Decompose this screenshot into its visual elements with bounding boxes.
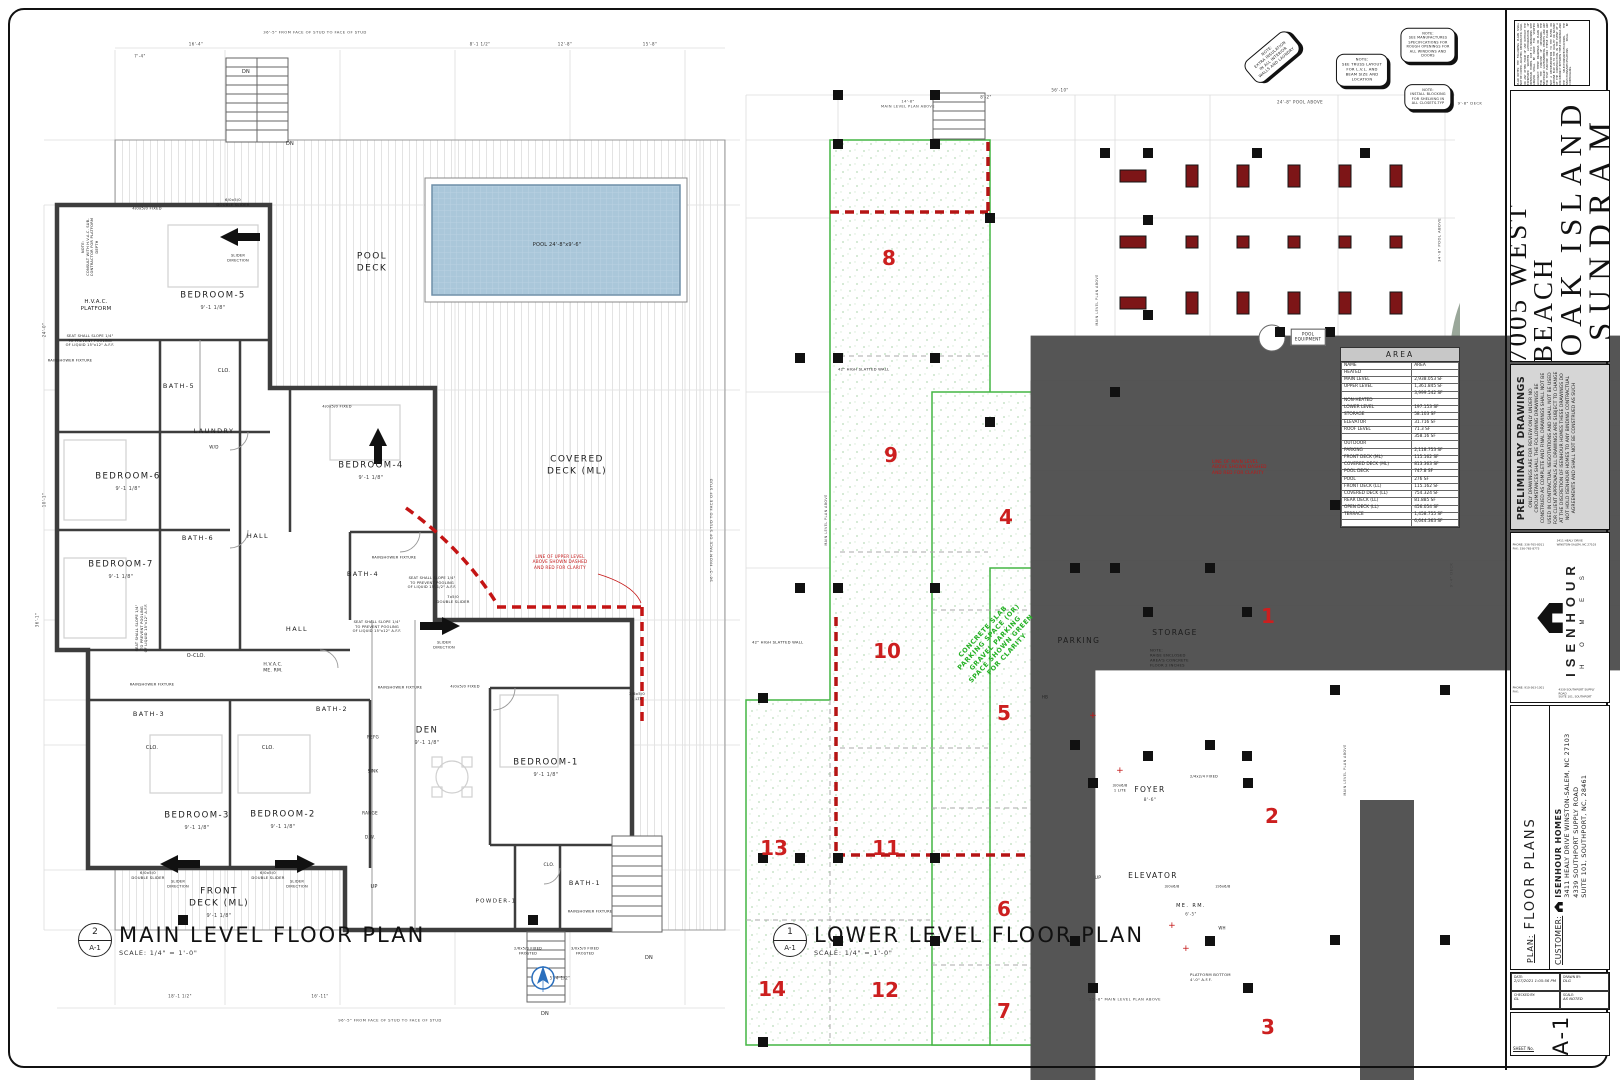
stall-number: 8: [882, 246, 896, 272]
stall-number: 5: [997, 701, 1011, 727]
main-plan-ref-bubble: 2 A-1: [78, 923, 112, 957]
area-name: ROOF LEVEL: [1342, 427, 1412, 434]
room-label-bath4: BATH-4: [347, 570, 379, 578]
preliminary-title: PRELIMINARY DRAWINGS: [1516, 376, 1527, 520]
detail-sheet: A-1: [774, 940, 806, 957]
room-label-me-rm: ME. RM.: [1176, 903, 1206, 909]
plan-label: RAINSHOWER FIXTURE: [130, 683, 175, 688]
plan-label: UP: [1095, 876, 1101, 882]
plan-label: SEAT SHALL SLOPE 1/4" TO PREVENT POOLING…: [353, 620, 402, 634]
lower-plan-title: LOWER LEVEL FLOOR PLAN: [814, 923, 1144, 947]
date-value: 2/17/2021 1:05:56 PM: [1514, 979, 1557, 984]
house-icon: [1554, 902, 1563, 912]
plan-label: SLIDER DIRECTION: [286, 879, 308, 888]
area-value: 747.8 SF: [1412, 469, 1459, 476]
area-table-row: COVERED DECK (LL)754.324 SF: [1342, 491, 1459, 498]
area-name: [1342, 434, 1412, 441]
plan-label: RANGE: [362, 810, 378, 815]
room-label-bath2: BATH-2: [316, 705, 348, 713]
lower-plan-titlebar: 1 A-1 LOWER LEVEL FLOOR PLAN SCALE: 1/4"…: [773, 923, 1144, 957]
area-value: 754.324 SF: [1412, 491, 1459, 498]
area-name: POOL: [1342, 477, 1412, 484]
room-label-covered-deck: COVERED DECK (ML): [547, 454, 607, 477]
stall-number: 9: [884, 443, 898, 469]
plan-label: NOTE: CONSULT WITH H.V.A.C. SUB- CONTRAC…: [81, 218, 99, 276]
area-table-row: HEATED: [1342, 370, 1459, 377]
area-table-row: POOL DECK747.8 SF: [1342, 469, 1459, 476]
plan-label: 8'-1 1/2": [470, 41, 491, 46]
room-label-storage: STORAGE: [1152, 628, 1198, 638]
plan-label: 5'-4 1/2": [550, 975, 571, 980]
plan-notes-text: PLAN NOTES: THE FOLLOWING PLANS SHALL NO…: [1515, 21, 1590, 86]
area-value: 276 SF: [1412, 477, 1459, 484]
plan-label: 15'-8": [643, 41, 657, 46]
plan-label: 96'-5" FROM FACE OF STUD TO FACE OF STUD: [338, 1019, 442, 1024]
plan-label: 2/6x5/0 FIXED FROSTED: [514, 946, 542, 955]
plan-label: 2/6x6/8: [1215, 885, 1230, 890]
water-heater-label: WH: [1218, 925, 1225, 930]
plan-label: 3/0x5/0 FIXED FROSTED: [571, 946, 599, 955]
area-name: REAR DECK (LL): [1342, 498, 1412, 505]
plan-label: 7x5/0 DOUBLE SLIDER: [436, 595, 469, 605]
room-label-bedroom4: BEDROOM-4: [338, 461, 403, 472]
area-col-name: NAME: [1342, 363, 1412, 370]
room-label-bath5: BATH-5: [163, 382, 195, 390]
room-label-powder1: POWDER-1: [475, 898, 516, 905]
plan-label: DN: [541, 1011, 549, 1017]
plan-label: 16'-11": [311, 993, 328, 998]
area-table-row: REAR DECK (LL)81.885 SF: [1342, 498, 1459, 505]
plan-label: W/D: [209, 444, 218, 449]
room-label-bath6: BATH-6: [182, 534, 214, 542]
plan-label: 4/0x5/0 FIXED: [132, 207, 162, 212]
logo-box: PHONE: 910-363-1301 FAX: 4339 SOUTHPORT …: [1510, 532, 1610, 703]
plan-label: 24'-0": [41, 323, 46, 337]
stall-number: 13: [760, 836, 788, 862]
project-name: SUNDRAM: [1586, 113, 1610, 341]
rough-opening-note: NOTE: SEE MANUFACTURES SPECIFICATIONS FO…: [1400, 28, 1455, 63]
stall-number: 7: [997, 999, 1011, 1025]
plan-label: UP: [370, 884, 377, 890]
plan-label: 34'-8" POOL ABOVE: [1438, 218, 1443, 262]
detail-number: 2: [79, 924, 111, 940]
area-value: 2,938.053 SF: [1412, 377, 1459, 384]
room-label-foyer: FOYER: [1134, 785, 1165, 795]
parking-surface-note: CONCRETE SLAB PARKING SPACE (OR) GRAVEL …: [949, 596, 1041, 691]
plan-label: MAIN LEVEL PLAN ABOVE: [824, 494, 828, 545]
hvac-platform-label: H.V.A.C. PLATFORM: [81, 299, 112, 313]
area-table-row: UPPER LEVEL1,361.845 SF: [1342, 384, 1459, 391]
plan-label: 3/0x6/8: [1164, 885, 1179, 890]
house-icon: [1537, 604, 1563, 634]
lower-plan-scale: SCALE: 1/4" = 1'-0": [814, 949, 1144, 957]
plan-label: SINK: [368, 768, 379, 773]
plan-label: CLO.: [543, 863, 554, 869]
plan-label: RAINSHOWER FIXTURE: [372, 556, 417, 561]
project-title-box: 7005 WEST BEACH OAK ISLAND SUNDRAM: [1510, 90, 1610, 362]
area-name: HEATED: [1342, 370, 1412, 377]
plan-label: 2/4x2/4 FIXED: [1190, 775, 1218, 780]
area-table-row: 6,644.363 SF: [1342, 519, 1459, 526]
stall-number: 1: [1261, 604, 1275, 630]
area-name: OUTDOOR: [1342, 441, 1412, 448]
plan-customer-box: PLAN: FLOOR PLANS CUSTOMER: ISENHOUR HOM…: [1510, 705, 1610, 970]
room-label-bedroom1: BEDROOM-1: [513, 758, 578, 769]
plan-label: 14'-8" MAIN LEVEL PLAN ABOVE: [881, 99, 935, 108]
area-table-row: ROOF LEVEL71.3 SF: [1342, 427, 1459, 434]
pool-equipment-label: POOL EQUIPMENT: [1291, 329, 1326, 346]
plan-value: FLOOR PLANS: [1523, 817, 1538, 929]
customer-address: 3411 HEALY DRIVE WINSTON-SALEM, NC 27103…: [1563, 734, 1589, 898]
plan-label: 9'-1 1/8": [206, 913, 231, 919]
room-label-pool-deck: POOL DECK: [357, 251, 387, 274]
plan-label: DN: [242, 69, 250, 75]
plan-label: 9'-1 1/8": [115, 486, 140, 492]
room-label-front-deck: FRONT DECK (ML): [189, 886, 249, 909]
plan-label: DN: [286, 141, 294, 147]
area-table: AREA NAME AREA HEATEDMAIN LEVEL2,938.053…: [1340, 347, 1460, 528]
plan-label: +: [1116, 766, 1124, 778]
architectural-sheet: POOL DECKPOOL 24'-8"x9'-6"BEDROOM-59'-1 …: [0, 0, 1620, 1080]
sheet-no-label: SHEET No.: [1513, 1046, 1534, 1051]
logo-addr-left: 4339 SOUTHPORT SUPPLY ROAD SUITE 101, SO…: [1558, 689, 1598, 700]
plan-label: 56'-10": [1051, 87, 1068, 92]
plan-label: 9'-1 1/8": [108, 574, 133, 580]
plan-label: PLATFORM BOTTOM 4'-0" A.F.F.: [1190, 973, 1231, 983]
stall-number: 4: [999, 505, 1013, 531]
plan-label: 8'-2": [980, 94, 991, 99]
area-table-row: FRONT DECK (LL)115.162 SF: [1342, 484, 1459, 491]
project-address: 7005 WEST BEACH: [1510, 91, 1556, 362]
main-plan-title: MAIN LEVEL FLOOR PLAN: [119, 923, 425, 947]
plan-label: 10'-1": [41, 493, 46, 507]
checked-by-value: GL: [1514, 997, 1557, 1002]
plan-label: 4/0x5/0 FIXED: [322, 405, 352, 410]
stall-number: 12: [871, 978, 899, 1004]
plan-label: MAIN LEVEL PLAN ABOVE: [1343, 744, 1347, 795]
room-label-bedroom5: BEDROOM-5: [180, 291, 245, 302]
logo-phone-right: PHONE: 336-765-8011 FAX: 336-765-8773: [1513, 543, 1553, 550]
labels-layer: POOL DECKPOOL 24'-8"x9'-6"BEDROOM-59'-1 …: [0, 0, 1620, 1080]
plan-label: CLO.: [262, 745, 274, 751]
plan-label: HALL: [286, 625, 308, 633]
area-value: [1412, 441, 1459, 448]
area-name: STORAGE: [1342, 412, 1412, 419]
room-label-parking: PARKING: [1058, 636, 1101, 646]
drawn-by-value: DLG: [1563, 979, 1606, 984]
plan-label: RAINSHOWER FIXTURE: [568, 910, 613, 915]
plan-label: RAINSHOWER FIXTURE: [378, 686, 423, 691]
detail-number: 1: [774, 924, 806, 940]
plan-label: 9'-8" DECK: [1458, 102, 1483, 107]
area-table-row: OUTDOOR: [1342, 441, 1459, 448]
area-name: MAIN LEVEL: [1342, 377, 1412, 384]
room-label-bedroom6: BEDROOM-6: [95, 472, 160, 483]
room-label-bath3: BATH-3: [133, 710, 165, 718]
plan-label: 42" HIGH SLATTED WALL: [752, 641, 803, 646]
area-name: ELEVATOR: [1342, 420, 1412, 427]
plan-label: DN: [645, 955, 653, 961]
logo-sub: H O M E S: [1580, 568, 1586, 669]
logo-name: ISENHOUR: [1563, 560, 1578, 677]
plan-label: 4/0x5/0 FIXED: [450, 685, 480, 690]
storage-floor-note: NOTE: RAISE ENCLOSED AREA'S CONCRETE FLO…: [1150, 648, 1189, 667]
plan-label: 9'-1 1/8": [270, 824, 295, 830]
plan-label: CLO.: [146, 745, 158, 751]
area-value: 81.885 SF: [1412, 498, 1459, 505]
area-table-row: STORAGE58.103 SF: [1342, 412, 1459, 419]
room-label-den: DEN: [416, 726, 438, 737]
plan-label: 8'-6": [1144, 798, 1157, 804]
sheet-info-grid: DATE: 2/17/2021 1:05:56 PM DRAWN BY: DLG…: [1510, 972, 1610, 1010]
logo-addr-right: 3411 HEALY DRIVE WINSTON-SALEM, NC 27103: [1557, 539, 1597, 546]
plan-label: HALL: [247, 532, 269, 540]
plan-label: 9'-1 1/8": [414, 740, 439, 746]
plan-label: 6/0x5/0 DOUBLE SLIDER: [216, 198, 249, 208]
area-name: TERRACE: [1342, 512, 1412, 519]
project-city: OAK ISLAND: [1556, 98, 1585, 357]
plan-label: SEAT SHALL SLOPE 1/4" TO PREVENT POOLING…: [135, 604, 149, 653]
area-table-row: 358.16 SF: [1342, 434, 1459, 441]
stall-number: 14: [758, 977, 786, 1003]
blocking-note: NOTE: INSTALL BLOCKING FOR SHELVING IN A…: [1404, 84, 1451, 110]
area-table-title: AREA: [1341, 348, 1459, 362]
plan-label: PLAN:: [1526, 934, 1535, 963]
plan-label: SEAT SHALL SLOPE 1/4" TO PREVENT POOLING…: [66, 334, 115, 348]
area-value: 71.3 SF: [1412, 427, 1459, 434]
plan-label: 9'-1 1/8": [200, 305, 225, 311]
area-value: 6,644.363 SF: [1412, 519, 1459, 526]
titleblock-divider: [1505, 10, 1507, 1070]
area-name: UPPER LEVEL: [1342, 384, 1412, 391]
room-label-elevator: ELEVATOR: [1128, 871, 1178, 881]
truss-note: NOTE: SEE TRUSS LAYOUT FOR L.V.L. AND BE…: [1336, 54, 1388, 87]
area-value: [1412, 370, 1459, 377]
area-value: 3,999.542 SF: [1412, 391, 1459, 398]
logo-phone-left: PHONE: 910-363-1301 FAX:: [1513, 686, 1553, 693]
plan-label: HB: [1042, 694, 1048, 699]
plan-label: 6'-5": [1185, 911, 1196, 916]
area-value: 58.103 SF: [1412, 412, 1459, 419]
plan-label: 7'-4": [134, 53, 145, 58]
plan-label: 9'-1 1/8": [533, 772, 558, 778]
area-value: 31.716 SF: [1412, 420, 1459, 427]
stall-number: 10: [873, 639, 901, 665]
plan-label: 6/0x5/0 DOUBLE SLIDER: [131, 871, 164, 881]
plan-label: CLO.: [218, 368, 230, 374]
plan-label: SLIDER DIRECTION: [433, 640, 455, 649]
lower-plan-ref-bubble: 1 A-1: [773, 923, 807, 957]
plan-label: RAINSHOWER FIXTURE: [48, 359, 93, 364]
main-plan-scale: SCALE: 1/4" = 1'-0": [119, 949, 425, 957]
plan-label: SLIDER DIRECTION: [167, 879, 189, 888]
plan-label: +: [1089, 711, 1097, 723]
plan-label: 3/0x6/8 1 LITE: [1112, 783, 1127, 792]
room-label-bedroom2: BEDROOM-2: [250, 810, 315, 821]
room-label-bedroom3: BEDROOM-3: [164, 811, 229, 822]
stall-number: 2: [1265, 804, 1279, 830]
plan-label: 16'-4": [189, 41, 203, 46]
plan-label: 96'-5" FROM FACE OF STUD TO FACE OF STUD: [710, 478, 715, 582]
main-level-note: LINE OF MAIN LEVEL ABOVE SHOWN DASHED AN…: [1212, 459, 1267, 475]
preliminary-box: PRELIMINARY DRAWINGS ONLY DRAWINGS ARE F…: [1510, 364, 1610, 530]
room-label-laundry: LAUNDRY: [194, 427, 235, 435]
plan-label: SLIDER DIRECTION: [227, 253, 249, 262]
plan-label: MAIN LEVEL PLAN ABOVE: [1095, 274, 1099, 325]
insulation-note: NOTE: EXTRA INSULATION IN ALL INTERIOR W…: [1241, 28, 1302, 86]
plan-label: 2/6x5/0 1 LTE: [629, 692, 645, 702]
stall-number: 3: [1261, 1015, 1275, 1041]
plan-label: O-CLO.: [187, 653, 206, 659]
area-name: [1342, 519, 1412, 526]
area-table-row: ELEVATOR31.716 SF: [1342, 420, 1459, 427]
plan-label: +: [1182, 944, 1190, 956]
room-label-bath1: BATH-1: [569, 879, 601, 887]
plan-label: 15'-8" MAIN LEVEL PLAN ABOVE: [1089, 998, 1161, 1003]
plan-label: 9'-1 1/8": [184, 825, 209, 831]
area-value: 115.162 SF: [1412, 484, 1459, 491]
preliminary-body: ONLY DRAWINGS ARE FOR REVIEW ONLY UNDER …: [1529, 371, 1579, 525]
plan-label: +: [1168, 921, 1176, 933]
detail-sheet: A-1: [79, 940, 111, 957]
plan-label: 6/0x5/0 DOUBLE SLIDER: [251, 871, 284, 881]
plan-label: 36'-1": [34, 613, 39, 627]
stall-number: 6: [997, 897, 1011, 923]
pool-size-label: POOL 24'-8"x9'-6": [533, 242, 581, 248]
area-table-row: POOL276 SF: [1342, 477, 1459, 484]
area-value: 1,361.845 SF: [1412, 384, 1459, 391]
plan-label: 9'-1 1/8": [358, 475, 383, 481]
plan-label: 9'-4" DECK: [1450, 563, 1455, 588]
plan-label: 24'-8" POOL ABOVE: [1277, 99, 1323, 104]
customer-label: CUSTOMER:: [1554, 916, 1563, 965]
customer-name: ISENHOUR HOMES: [1554, 734, 1563, 898]
area-col-area: AREA: [1412, 363, 1459, 370]
stall-number: 11: [872, 836, 900, 862]
upper-level-note: LINE OF UPPER LEVEL ABOVE SHOWN DASHED A…: [533, 554, 588, 570]
plan-label: 36'-5" FROM FACE OF STUD TO FACE OF STUD: [263, 31, 367, 36]
plan-label: 12'-8": [558, 41, 572, 46]
area-table-row: MAIN LEVEL2,938.053 SF: [1342, 377, 1459, 384]
area-name: FRONT DECK (LL): [1342, 484, 1412, 491]
plan-label: D.W.: [365, 834, 375, 839]
area-value: 358.16 SF: [1412, 434, 1459, 441]
area-name: POOL DECK: [1342, 469, 1412, 476]
room-label-bedroom7: BEDROOM-7: [88, 560, 153, 571]
plan-notes-box: PLAN NOTES: THE FOLLOWING PLANS SHALL NO…: [1514, 20, 1590, 86]
scale-value: AS NOTED: [1563, 997, 1606, 1002]
plan-label: 18'-1 1/2": [168, 993, 192, 998]
area-name: COVERED DECK (LL): [1342, 491, 1412, 498]
plan-label: REFG: [367, 734, 379, 739]
plan-label: H.V.A.C. ME. RM.: [263, 662, 282, 674]
plan-label: 42" HIGH SLATTED WALL: [838, 368, 889, 373]
main-plan-titlebar: 2 A-1 MAIN LEVEL FLOOR PLAN SCALE: 1/4" …: [78, 923, 425, 957]
plan-label: SEAT SHALL SLOPE 1/4" TO PREVENT POOLING…: [408, 576, 457, 590]
